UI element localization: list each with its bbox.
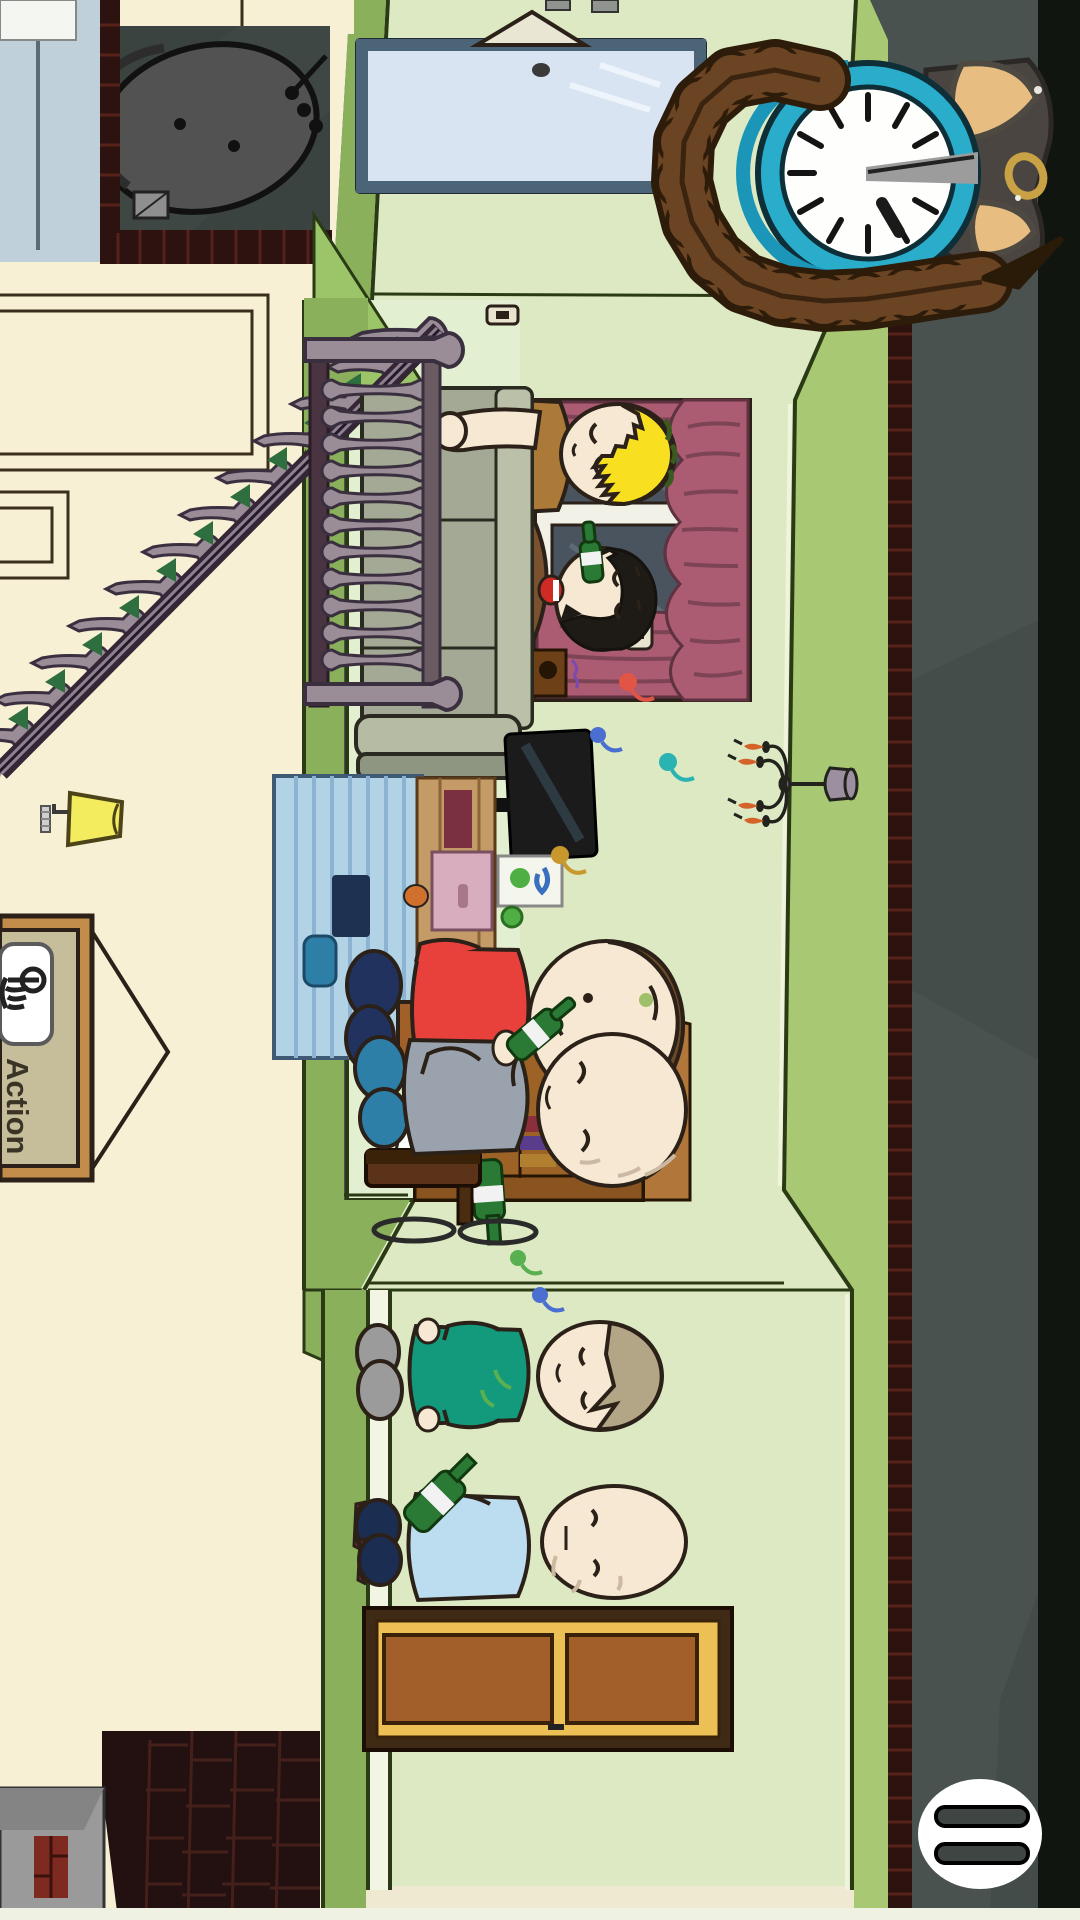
svg-text:Action: Action xyxy=(0,1058,35,1154)
